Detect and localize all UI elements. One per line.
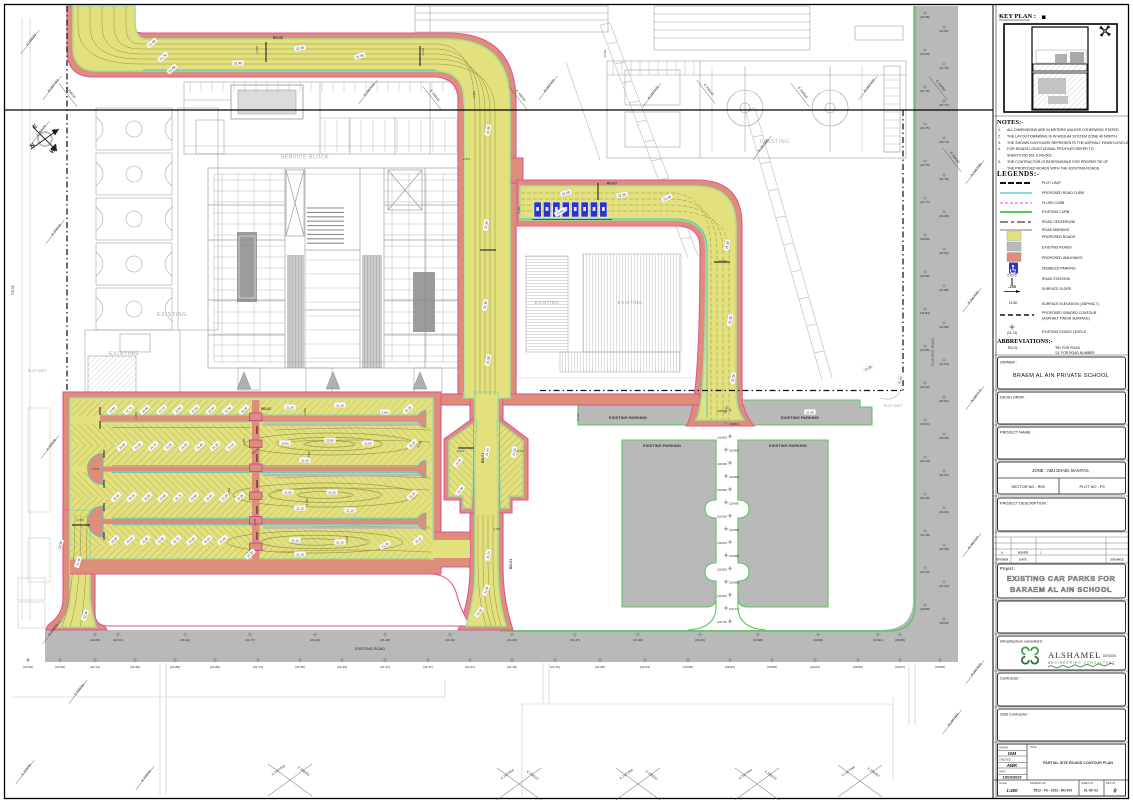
svg-text:ENGINEERING CONSULTANT: ENGINEERING CONSULTANT [1048, 661, 1115, 665]
svg-text:20.90: 20.90 [326, 438, 334, 442]
svg-text:THE SHOWN CONTOURS REPRESENTS: THE SHOWN CONTOURS REPRESENTS THE ASPHAL… [1007, 141, 1129, 145]
svg-text:(20.68): (20.68) [729, 581, 739, 585]
svg-text:SURFACE SLOPE: SURFACE SLOPE [1042, 287, 1072, 291]
svg-text:(21.75): (21.75) [920, 163, 930, 167]
svg-text:(21.32): (21.32) [445, 638, 455, 642]
svg-text:(21.77): (21.77) [939, 103, 949, 107]
svg-text:(21.65): (21.65) [295, 665, 305, 669]
svg-text:(21.83): (21.83) [920, 52, 930, 56]
svg-text:2.5%: 2.5% [517, 206, 521, 213]
svg-text:-0.6%: -0.6% [718, 259, 726, 263]
svg-text:(21.08): (21.08) [595, 665, 605, 669]
svg-text:(21.32): (21.32) [507, 638, 517, 642]
svg-text:2.6%: 2.6% [382, 410, 389, 414]
svg-text:(20.88): (20.88) [717, 488, 727, 492]
svg-text:-0.5%: -0.5% [462, 157, 470, 161]
svg-text:(22.20): (22.20) [90, 638, 100, 642]
svg-text:RD-02: RD-02 [261, 407, 271, 411]
svg-text:DRAWN: DRAWN [999, 747, 1008, 750]
svg-text:2.: 2. [998, 134, 1001, 138]
svg-text:EXISTING: EXISTING [109, 351, 139, 357]
svg-text:(21.84): (21.84) [920, 311, 930, 315]
svg-text:ALL DIMENSIONS ARE IN METERS U: ALL DIMENSIONS ARE IN METERS UNLESS OTHE… [1007, 128, 1120, 132]
svg-text:SCALE: SCALE [999, 782, 1007, 785]
svg-text:(21.04): (21.04) [640, 665, 650, 669]
svg-text:21.10: 21.10 [296, 506, 304, 510]
svg-text:EXISTING ROAD: EXISTING ROAD [931, 338, 935, 367]
svg-text:(21.79): (21.79) [939, 66, 949, 70]
svg-text:-2.0%: -2.0% [603, 50, 607, 58]
svg-text:21.20: 21.20 [336, 403, 344, 407]
svg-text:1:400: 1:400 [1006, 788, 1018, 793]
svg-text:DATE: DATE [1019, 558, 1027, 562]
svg-text:PLOT LIMIT: PLOT LIMIT [884, 404, 902, 408]
svg-text:(21.47): (21.47) [380, 665, 390, 669]
svg-text:(20.90): (20.90) [717, 515, 727, 519]
svg-text:ROAD MARKING: ROAD MARKING [1042, 228, 1070, 232]
svg-text:NOTES:-: NOTES:- [997, 119, 1023, 126]
svg-text:21.10: 21.10 [291, 538, 299, 542]
svg-text:(21.86): (21.86) [920, 237, 930, 241]
svg-text:PROPOSED ROAD CURB: PROPOSED ROAD CURB [1042, 191, 1084, 195]
svg-text:(21.41): (21.41) [550, 665, 560, 669]
svg-text:(20.64): (20.64) [717, 541, 727, 545]
svg-text:RD-06: RD-06 [273, 36, 283, 40]
svg-text:ALSHAMEL: ALSHAMEL [1048, 650, 1101, 660]
svg-text:-0.2%: -0.2% [516, 449, 524, 453]
svg-text:'01' FOR ROAD NUMBER: '01' FOR ROAD NUMBER [1055, 351, 1095, 355]
svg-text:0: 0 [1114, 789, 1117, 795]
svg-text:(22.13): (22.13) [113, 638, 123, 642]
svg-text:EXISTING: EXISTING [535, 300, 560, 305]
svg-text:21.30: 21.30 [286, 405, 294, 409]
svg-text:ROAD STATIONS: ROAD STATIONS [1042, 277, 1071, 281]
svg-text:(21.88): (21.88) [939, 325, 949, 329]
svg-text:ISSUED: ISSUED [1018, 551, 1028, 555]
svg-text:(20.88): (20.88) [729, 528, 739, 532]
svg-text:(21.86): (21.86) [920, 15, 930, 19]
svg-text:(21.32): (21.32) [939, 510, 949, 514]
svg-text:21.10: 21.10 [346, 508, 354, 512]
svg-text:-1.05: -1.05 [1008, 285, 1016, 289]
svg-text:'RD' FOR ROAD: 'RD' FOR ROAD [1055, 346, 1081, 350]
svg-text:2.5%: 2.5% [305, 498, 309, 505]
svg-text:(21.74): (21.74) [939, 140, 949, 144]
svg-text:KEY PLAN :: KEY PLAN : [999, 13, 1036, 20]
svg-text:EXISTING CAR PARKS FOR: EXISTING CAR PARKS FOR [1007, 574, 1116, 583]
svg-text:(20.80): (20.80) [717, 567, 727, 571]
svg-text:(21.54): (21.54) [939, 362, 949, 366]
svg-text:21.15: 21.15 [336, 540, 344, 544]
svg-text:SERVICE BLOCK: SERVICE BLOCK [281, 155, 329, 161]
svg-text:(20.80): (20.80) [853, 665, 863, 669]
svg-text:4.: 4. [998, 147, 1001, 151]
svg-text:SHEETS RD-601 & RD-602.: SHEETS RD-601 & RD-602. [1007, 154, 1053, 158]
svg-text:SURFACE ELEVATION ( ASPHALT ): SURFACE ELEVATION ( ASPHALT ) [1042, 302, 1099, 306]
svg-text:(21.73): (21.73) [253, 665, 263, 669]
svg-text:ISSUANCE: ISSUANCE [1110, 558, 1124, 562]
svg-text:-2.5%: -2.5% [472, 91, 476, 99]
svg-text:EXISTING PARKING: EXISTING PARKING [769, 443, 807, 448]
svg-text:(21.77): (21.77) [245, 638, 255, 642]
svg-text:-2.5%: -2.5% [303, 408, 307, 416]
svg-text:(21.92): (21.92) [939, 251, 949, 255]
svg-text:-2.5%: -2.5% [255, 46, 259, 54]
svg-text:2.0%: 2.0% [576, 413, 580, 420]
svg-text:0.5%: 0.5% [134, 411, 138, 418]
svg-text:RD-01: RD-01 [509, 559, 513, 569]
svg-text:Project :: Project : [1000, 566, 1015, 571]
svg-text:(20.98): (20.98) [753, 638, 763, 642]
svg-text:EXISTING: EXISTING [157, 312, 187, 318]
svg-text:(21.33): (21.33) [695, 638, 705, 642]
svg-text:(21.71): (21.71) [920, 200, 930, 204]
svg-text:DEVELOPER :: DEVELOPER : [1000, 395, 1026, 400]
svg-text:(21.52): (21.52) [920, 385, 930, 389]
svg-text:SECTOR NO : R93: SECTOR NO : R93 [1011, 484, 1044, 489]
svg-text:RD-01: RD-01 [1008, 346, 1018, 350]
svg-text:(20.96): (20.96) [813, 638, 823, 642]
svg-text:1.: 1. [998, 128, 1001, 132]
svg-text:DRAWING NO: DRAWING NO [1030, 782, 1046, 785]
svg-text:PROPOSED ROADS: PROPOSED ROADS [1042, 235, 1076, 239]
svg-text:(21.92): (21.92) [180, 638, 190, 642]
svg-text:THE LAYOUT DRAWING IS IN WGS-8: THE LAYOUT DRAWING IS IN WGS-84 SYSTEM Z… [1007, 134, 1118, 138]
svg-text:AWK: AWK [1006, 763, 1018, 768]
svg-text:(21.98): (21.98) [939, 214, 949, 218]
svg-text:PLOT NO : P3: PLOT NO : P3 [1079, 484, 1104, 489]
svg-text:01 OF 02: 01 OF 02 [1084, 789, 1098, 793]
svg-text:EXISTING ROADS LEVELS: EXISTING ROADS LEVELS [1042, 330, 1087, 334]
svg-text:PLOT LIMIT: PLOT LIMIT [1042, 181, 1062, 185]
svg-text:21.05: 21.05 [328, 490, 336, 494]
svg-text:EXISTING ROAD: EXISTING ROAD [355, 647, 385, 651]
svg-text:-4.5%: -4.5% [307, 451, 311, 459]
svg-text:(21.27): (21.27) [465, 665, 475, 669]
svg-text:ISM: ISM [1008, 751, 1016, 756]
svg-text:(20.89): (20.89) [895, 638, 905, 642]
svg-text:(20.94): (20.94) [725, 665, 735, 669]
svg-text:(21.88): (21.88) [939, 288, 949, 292]
svg-text:PROJECT NAME :: PROJECT NAME : [1000, 430, 1033, 435]
svg-text:(21.41): (21.41) [939, 473, 949, 477]
svg-text:(20.68): (20.68) [717, 462, 727, 466]
svg-text:(21.40): (21.40) [633, 638, 643, 642]
svg-text:EXISTING PARKING: EXISTING PARKING [781, 415, 819, 420]
svg-text:(20.88): (20.88) [767, 665, 777, 669]
svg-text:2.6%: 2.6% [242, 438, 246, 445]
svg-text:(21.88): (21.88) [170, 665, 180, 669]
svg-text:ROAD CENTERLINE: ROAD CENTERLINE [1042, 220, 1076, 224]
svg-text:-2.5%: -2.5% [227, 488, 231, 496]
svg-text:Contractor :: Contractor : [1000, 676, 1020, 681]
svg-text:20.90: 20.90 [281, 441, 289, 445]
svg-text:(ASPHALT FINISH SURFACE): (ASPHALT FINISH SURFACE) [1042, 317, 1090, 321]
svg-text:EXISTING: EXISTING [618, 300, 643, 305]
svg-text:Infrastructure consultant :: Infrastructure consultant : [1000, 639, 1044, 644]
svg-text:DESIGN: DESIGN [1103, 654, 1117, 658]
svg-text:(21.70): (21.70) [939, 177, 949, 181]
svg-text:-2.0%: -2.0% [421, 48, 425, 56]
svg-text:(21.26): (21.26) [920, 570, 930, 574]
svg-text:BRAEM AL AIN PRIVATE SCHOOL: BRAEM AL AIN PRIVATE SCHOOL [1013, 373, 1109, 379]
svg-text:(21.51): (21.51) [920, 422, 930, 426]
svg-text:FLUSH CURB: FLUSH CURB [1042, 201, 1065, 205]
svg-text:CHECKED: CHECKED [999, 759, 1011, 762]
svg-text:5.: 5. [998, 160, 1001, 164]
svg-text:19/10/2023: 19/10/2023 [1002, 776, 1022, 780]
svg-text:(21.47): (21.47) [570, 638, 580, 642]
svg-text:21.40: 21.40 [806, 410, 814, 414]
svg-text:(21.75): (21.75) [920, 126, 930, 130]
svg-text:0+270: 0+270 [1008, 274, 1017, 278]
svg-text:FOR ROADS LONGITUDINAL PROFILE: FOR ROADS LONGITUDINAL PROFILES REFER TO [1007, 147, 1094, 151]
svg-text:(21.48): (21.48) [939, 436, 949, 440]
svg-text:(21.92): (21.92) [939, 29, 949, 33]
svg-text:(20.84): (20.84) [810, 665, 820, 669]
svg-text:-3.0%: -3.0% [345, 536, 349, 544]
svg-text:(20.68): (20.68) [729, 501, 739, 505]
svg-text:EXISTING ROADS: EXISTING ROADS [1042, 246, 1072, 250]
svg-text:RD-07: RD-07 [607, 182, 617, 186]
svg-text:DATE: DATE [999, 771, 1006, 774]
svg-text:-0.5%: -0.5% [76, 518, 84, 522]
svg-text:(21.98): (21.98) [130, 665, 140, 669]
svg-text:(21.15): (21.15) [507, 665, 517, 669]
svg-text:PARTIAL SITE ROADS CONTOUR PLA: PARTIAL SITE ROADS CONTOUR PLAN [1043, 761, 1113, 765]
svg-text:PROPOSED GRADED CONTOUR: PROPOSED GRADED CONTOUR [1042, 311, 1097, 315]
svg-text:OWNER :: OWNER : [1000, 360, 1017, 365]
svg-text:THE CONTRACTOR IS RESPONSIBLE: THE CONTRACTOR IS RESPONSIBLE FOR PROPER… [1007, 160, 1109, 164]
svg-text:(22.48): (22.48) [23, 665, 33, 669]
svg-text:(22.28): (22.28) [55, 665, 65, 669]
svg-text:PROJECT DESCRIPTION :: PROJECT DESCRIPTION : [1000, 501, 1048, 506]
svg-text:REV NO: REV NO [1106, 782, 1115, 785]
svg-text:(20.88): (20.88) [935, 665, 945, 669]
svg-text:(20.80): (20.80) [729, 449, 739, 453]
svg-text:1.5%: 1.5% [253, 518, 257, 525]
svg-text:(21.62): (21.62) [939, 399, 949, 403]
svg-text:(21.78): (21.78) [920, 89, 930, 93]
svg-text:(21.28): (21.28) [939, 547, 949, 551]
svg-text:ABBREVIATIONS:-: ABBREVIATIONS:- [997, 338, 1053, 345]
svg-text:21.10: 21.10 [296, 552, 304, 556]
svg-text:(20.83): (20.83) [717, 435, 727, 439]
svg-text:TITLE: TITLE [1030, 746, 1037, 749]
svg-text:(20.77): (20.77) [729, 607, 739, 611]
svg-text:(20.88): (20.88) [729, 554, 739, 558]
svg-text:(21.48): (21.48) [380, 638, 390, 642]
svg-text:(20.75): (20.75) [717, 620, 727, 624]
svg-text:(21.86): (21.86) [920, 348, 930, 352]
svg-text:ZONE : ABU DHABI, BANIYAS,: ZONE : ABU DHABI, BANIYAS, [1032, 468, 1089, 473]
svg-text:EXISTING PARKING: EXISTING PARKING [643, 443, 681, 448]
svg-text:(20.98): (20.98) [920, 607, 930, 611]
svg-text:(20.91): (20.91) [873, 638, 883, 642]
svg-text:EXISTING PARKING: EXISTING PARKING [609, 415, 647, 420]
svg-text:RD-06: RD-06 [11, 285, 15, 294]
svg-text:2.3%: 2.3% [493, 527, 500, 531]
svg-text:DISABLED PARKING: DISABLED PARKING [1042, 267, 1076, 271]
svg-text:(21.86): (21.86) [210, 665, 220, 669]
svg-text:REVISION: REVISION [996, 558, 1009, 562]
svg-text:(20.99): (20.99) [683, 665, 693, 669]
svg-text:(21.86): (21.86) [920, 274, 930, 278]
svg-text:BARAEM AL AIN SCHOOL: BARAEM AL AIN SCHOOL [1010, 585, 1112, 594]
svg-text:(21.44): (21.44) [920, 459, 930, 463]
svg-text:(21.28): (21.28) [920, 533, 930, 537]
svg-text:5512 - P3 - 2023 - RD-601: 5512 - P3 - 2023 - RD-601 [1034, 789, 1073, 793]
svg-text:SUB Contractor :: SUB Contractor : [1000, 712, 1029, 717]
svg-text:LEGENDS:-: LEGENDS:- [997, 170, 1040, 178]
svg-text:(21.37): (21.37) [423, 665, 433, 669]
svg-text:PLOT LIMIT: PLOT LIMIT [28, 369, 46, 373]
svg-text:21.40: 21.40 [234, 61, 242, 65]
svg-text:(22.14): (22.14) [90, 665, 100, 669]
svg-text:(20.80): (20.80) [717, 594, 727, 598]
svg-text:SHEET NO: SHEET NO [1081, 782, 1093, 785]
svg-text:EXISTING CURB: EXISTING CURB [1042, 210, 1070, 214]
svg-text:(21.38): (21.38) [920, 496, 930, 500]
svg-text:(20.94): (20.94) [939, 621, 949, 625]
svg-text:(21.49): (21.49) [337, 665, 347, 669]
svg-text:(20.87): (20.87) [895, 665, 905, 669]
svg-text:21.00: 21.00 [364, 441, 372, 445]
svg-text:(21.92): (21.92) [310, 638, 320, 642]
svg-text:3.: 3. [998, 141, 1001, 145]
svg-text:(20.84): (20.84) [729, 422, 739, 426]
svg-text:(21.24): (21.24) [939, 584, 949, 588]
svg-text:PROPOSED WALKWAYS: PROPOSED WALKWAYS [1042, 256, 1083, 260]
svg-text:-0.2%: -0.2% [91, 467, 99, 471]
svg-text:21.05: 21.05 [284, 490, 292, 494]
svg-text:(21.74): (21.74) [1007, 331, 1017, 335]
svg-text:21.80: 21.80 [1009, 301, 1018, 305]
svg-text:-2.5%: -2.5% [456, 449, 464, 453]
svg-text:(20.80): (20.80) [729, 475, 739, 479]
